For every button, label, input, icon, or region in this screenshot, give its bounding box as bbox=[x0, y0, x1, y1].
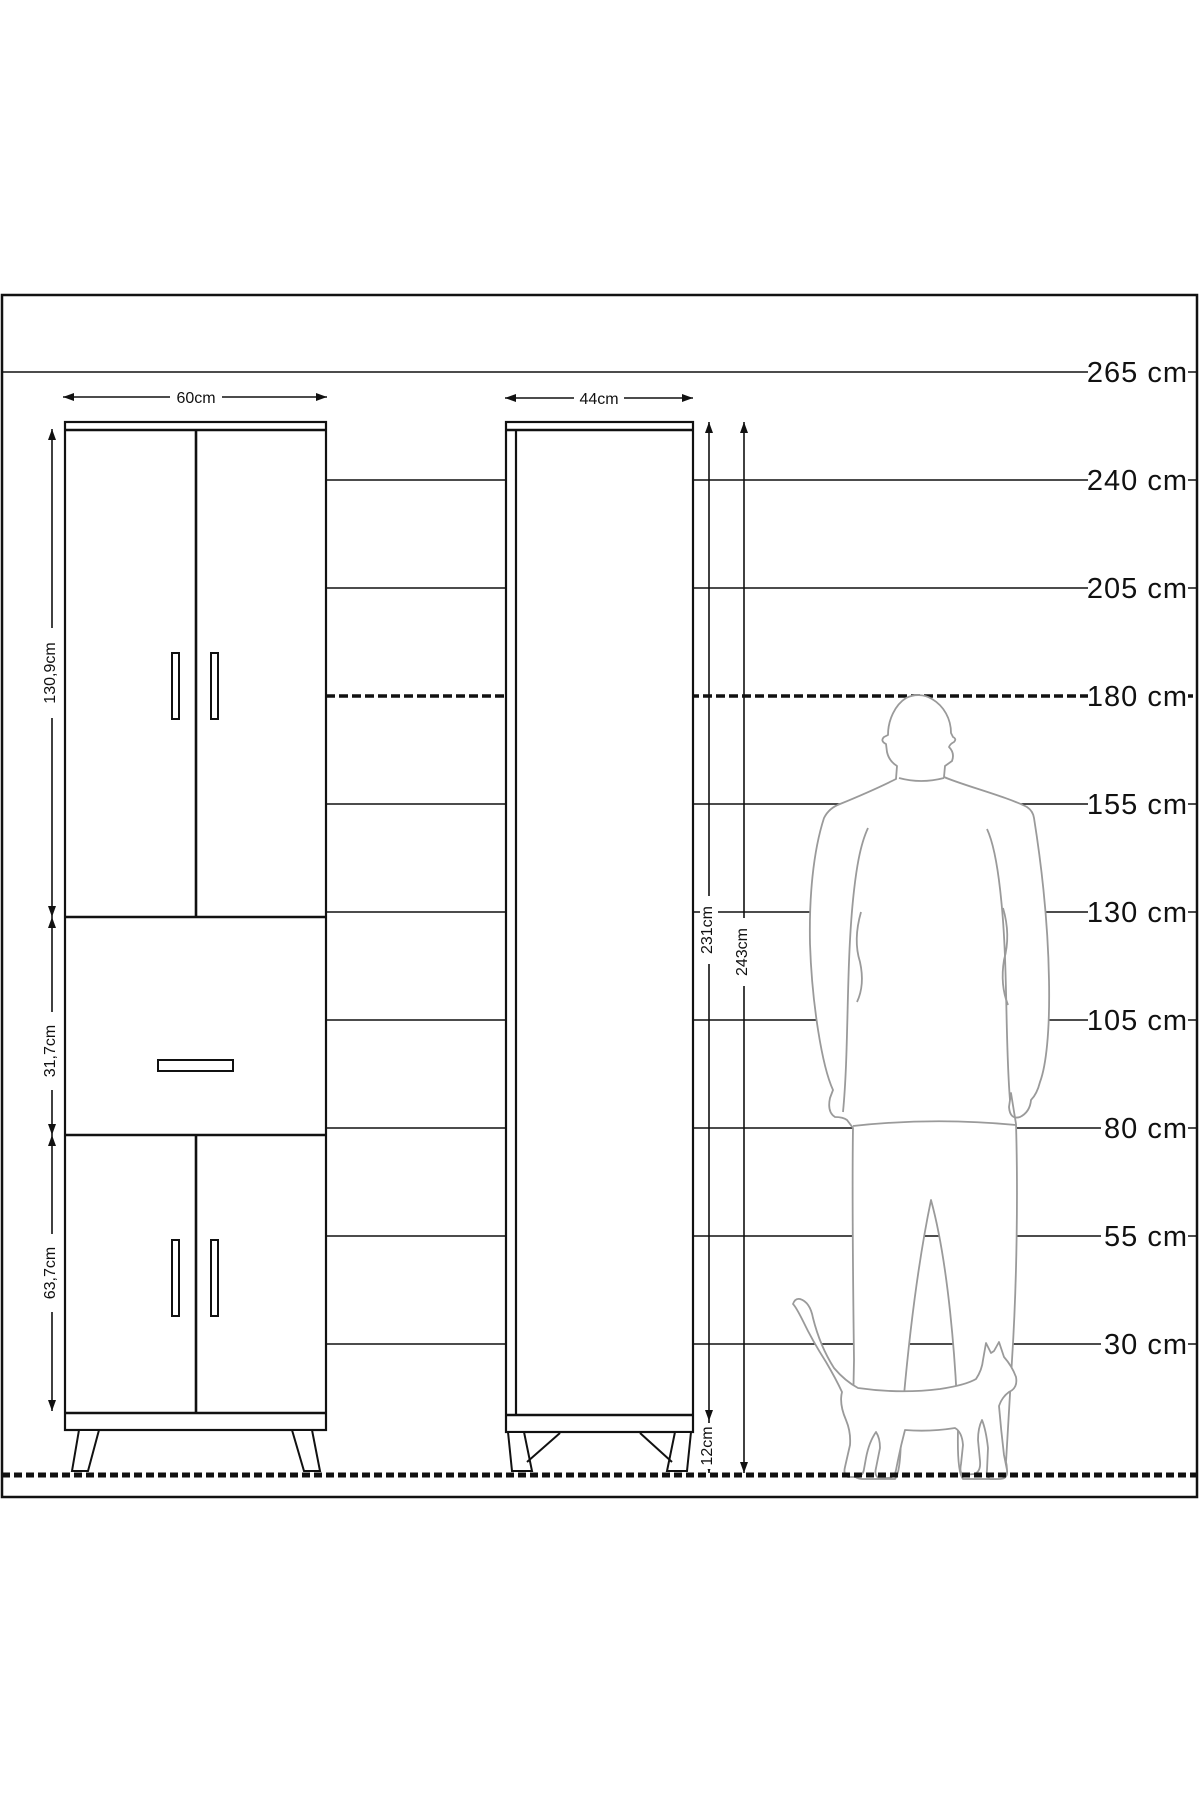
upper-right-door-handle bbox=[211, 653, 218, 719]
right-cabinet-right-leg bbox=[667, 1432, 691, 1471]
leg-height-label: 12cm bbox=[699, 1426, 716, 1465]
scale-label-55: 55 cm bbox=[1104, 1221, 1188, 1253]
scale-label-240: 240 cm bbox=[1087, 465, 1188, 497]
lower-left-door-handle bbox=[172, 1240, 179, 1316]
right-cabinet-height-dimensions: 231cm 12cm 243cm bbox=[699, 422, 753, 1473]
scale-label-80: 80 cm bbox=[1104, 1113, 1188, 1145]
man-outline bbox=[810, 695, 1049, 1479]
lower-right-door-handle bbox=[211, 1240, 218, 1316]
scale-label-265: 265 cm bbox=[1087, 357, 1188, 389]
dimension-drawing-canvas: 60cm 44cm 130,9cm 31,7cm 63,7cm 231cm 12… bbox=[0, 0, 1200, 1800]
left-cabinet bbox=[65, 422, 326, 1471]
scale-label-180: 180 cm bbox=[1087, 681, 1188, 713]
left-cabinet-width-label: 60cm bbox=[176, 390, 215, 407]
right-cabinet-width-label: 44cm bbox=[579, 391, 618, 408]
scale-label-155: 155 cm bbox=[1087, 789, 1188, 821]
right-cabinet-body bbox=[506, 422, 693, 1432]
width-dimension-60: 60cm bbox=[63, 388, 327, 407]
drawing-svg: 60cm 44cm 130,9cm 31,7cm 63,7cm 231cm 12… bbox=[0, 0, 1200, 1800]
width-dimension-44: 44cm bbox=[505, 389, 693, 408]
right-cabinet bbox=[506, 422, 693, 1471]
height-scale-labels: 265 cm 240 cm 205 cm 180 cm 155 cm 130 c… bbox=[1087, 355, 1188, 1361]
scale-label-105: 105 cm bbox=[1087, 1005, 1188, 1037]
left-cabinet-right-leg bbox=[292, 1430, 320, 1471]
right-cabinet-left-leg bbox=[508, 1432, 532, 1471]
upper-left-door-handle bbox=[172, 653, 179, 719]
drawer-handle bbox=[158, 1060, 233, 1071]
right-cabinet-left-leg-brace bbox=[527, 1433, 560, 1462]
lower-section-height-label: 63,7cm bbox=[42, 1247, 59, 1299]
right-cabinet-right-leg-brace bbox=[640, 1433, 672, 1462]
scale-label-130: 130 cm bbox=[1087, 897, 1188, 929]
right-cabinet-total-height-label: 243cm bbox=[734, 928, 751, 976]
right-cabinet-body-height-label: 231cm bbox=[699, 906, 716, 954]
left-cabinet-left-leg bbox=[72, 1430, 99, 1471]
upper-section-height-label: 130,9cm bbox=[42, 642, 59, 703]
scale-label-205: 205 cm bbox=[1087, 573, 1188, 605]
drawer-section-height-label: 31,7cm bbox=[42, 1025, 59, 1077]
left-height-dimension-chain: 130,9cm 31,7cm 63,7cm bbox=[42, 429, 61, 1411]
scale-label-30: 30 cm bbox=[1104, 1329, 1188, 1361]
man-silhouette bbox=[810, 695, 1049, 1479]
